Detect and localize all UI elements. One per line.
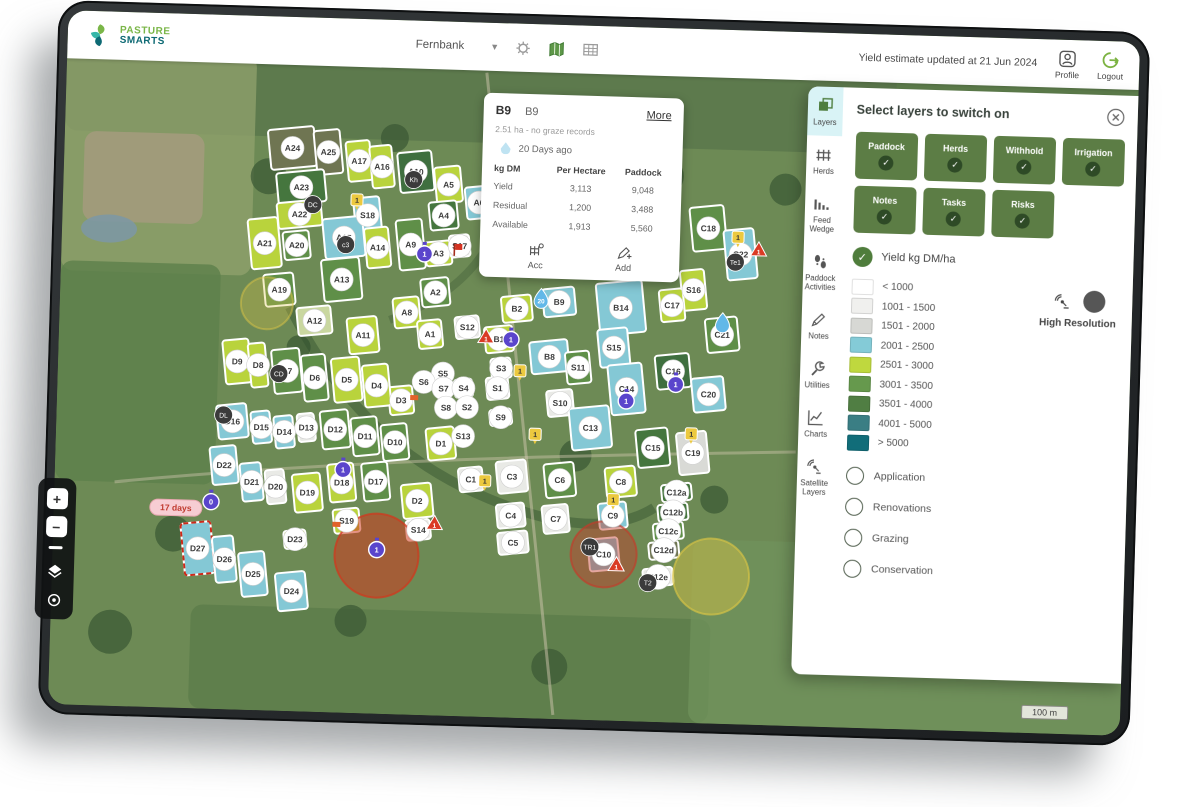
paddock-label-A8[interactable]: A8 xyxy=(395,301,419,325)
acc-action-button[interactable]: Acc xyxy=(527,242,545,270)
svg-text:D10: D10 xyxy=(387,437,403,447)
legend-swatch xyxy=(847,434,869,451)
paddock-label-D20[interactable]: D20 xyxy=(264,475,288,499)
map-scale: 100 m xyxy=(1021,705,1068,720)
svg-text:C5: C5 xyxy=(507,538,518,548)
paddock-label-A17[interactable]: A17 xyxy=(347,149,371,173)
legend-label: 1001 - 1500 xyxy=(882,301,936,314)
svg-text:1: 1 xyxy=(509,335,513,344)
svg-text:D19: D19 xyxy=(299,487,315,497)
yield-layer-label: Yield kg DM/ha xyxy=(881,251,956,265)
svg-text:CD: CD xyxy=(274,371,284,378)
svg-text:DC: DC xyxy=(308,202,318,209)
svg-text:A24: A24 xyxy=(285,143,301,153)
close-icon[interactable] xyxy=(1105,107,1126,128)
gear-icon[interactable] xyxy=(513,38,533,58)
check-icon: ✓ xyxy=(852,247,873,268)
paddock-label-S16[interactable]: S16 xyxy=(682,278,706,302)
svg-text:S1: S1 xyxy=(492,383,503,393)
graze-icon xyxy=(527,242,544,258)
paddock-label-A2[interactable]: A2 xyxy=(423,280,447,304)
svg-text:B2: B2 xyxy=(511,304,522,314)
legend-swatch xyxy=(850,317,872,334)
radio-icon xyxy=(843,559,862,578)
add-note-icon xyxy=(615,245,632,261)
option-renovations[interactable]: Renovations xyxy=(845,497,1114,523)
zoom-in-button[interactable]: + xyxy=(46,488,68,510)
svg-text:D22: D22 xyxy=(216,460,232,470)
paddock-label-C20[interactable]: C20 xyxy=(697,383,721,407)
svg-text:A25: A25 xyxy=(321,147,337,157)
svg-text:A11: A11 xyxy=(355,330,371,340)
paddock-label-D27[interactable]: D27 xyxy=(186,536,210,560)
radio-icon xyxy=(845,497,864,516)
radio-icon xyxy=(846,466,865,485)
layer-toggle-notes[interactable]: Notes✓ xyxy=(853,186,916,235)
paddock-label-S9[interactable]: S9 xyxy=(489,405,513,429)
popup-col-paddock: Paddock xyxy=(616,164,670,182)
paddock-label-D15[interactable]: D15 xyxy=(249,415,273,439)
paddock-label-A24[interactable]: A24 xyxy=(281,136,305,160)
svg-text:S7: S7 xyxy=(438,383,449,393)
tag-badge[interactable]: TR1 xyxy=(581,538,600,557)
high-resolution-control: High Resolution xyxy=(1025,289,1130,331)
zoom-slider[interactable] xyxy=(49,546,63,549)
svg-text:1: 1 xyxy=(689,432,693,439)
svg-text:A20: A20 xyxy=(289,240,305,250)
svg-text:Te1: Te1 xyxy=(730,260,741,267)
alert-zone xyxy=(672,537,750,615)
paddock-label-A25[interactable]: A25 xyxy=(317,140,341,164)
logo-line2: SMARTS xyxy=(119,36,170,47)
layer-toggle-tasks[interactable]: Tasks✓ xyxy=(922,188,985,237)
legend-swatch xyxy=(849,356,871,373)
herds-icon xyxy=(814,144,835,165)
panel-tab-paddock-activities[interactable]: Paddock Activities xyxy=(802,242,838,301)
svg-text:D23: D23 xyxy=(287,534,303,544)
panel-tab-herds[interactable]: Herds xyxy=(806,135,842,185)
paddock-label-C15[interactable]: C15 xyxy=(641,436,665,460)
svg-text:D25: D25 xyxy=(245,569,261,579)
tag-badge[interactable]: DC xyxy=(304,195,323,214)
svg-text:C17: C17 xyxy=(664,300,680,310)
profile-button[interactable]: Profile xyxy=(1055,48,1080,80)
option-grazing[interactable]: Grazing xyxy=(844,528,1113,554)
paddock-label-A5[interactable]: A5 xyxy=(437,173,461,197)
popup-paddock-id[interactable]: B9 xyxy=(496,103,512,117)
panel-tab-label: Charts xyxy=(804,429,827,439)
tag-badge[interactable]: c3 xyxy=(336,235,355,254)
logout-icon xyxy=(1100,49,1121,70)
svg-text:D24: D24 xyxy=(284,586,300,596)
paddock-label-S13[interactable]: S13 xyxy=(451,424,475,448)
svg-text:S10: S10 xyxy=(552,398,568,408)
paddock-label-D13[interactable]: D13 xyxy=(294,416,318,440)
panel-tab-charts[interactable]: Charts xyxy=(798,398,834,448)
paddock-label-S12[interactable]: S12 xyxy=(455,315,479,339)
paddock-label-D6[interactable]: D6 xyxy=(303,366,327,390)
svg-text:1: 1 xyxy=(614,564,618,571)
svg-text:S14: S14 xyxy=(411,525,427,535)
legend-swatch xyxy=(851,278,873,295)
paddock-label-D12[interactable]: D12 xyxy=(323,418,347,442)
paddock-label-A1[interactable]: A1 xyxy=(418,322,442,346)
svg-text:A14: A14 xyxy=(370,242,386,252)
chevron-down-icon: ▼ xyxy=(490,42,499,52)
check-icon: ✓ xyxy=(1016,159,1031,174)
paddock-label-D2[interactable]: D2 xyxy=(405,489,429,513)
svg-text:S18: S18 xyxy=(360,210,376,220)
farm-selector-value: Fernbank xyxy=(415,39,464,52)
tag-badge[interactable]: CD xyxy=(270,364,289,383)
paddock-label-D23[interactable]: D23 xyxy=(283,527,307,551)
legend-label: < 1000 xyxy=(882,282,913,294)
popup-table: kg DM Per Hectare Paddock Yield3,1139,04… xyxy=(492,160,670,238)
yield-layer-toggle[interactable]: ✓ Yield kg DM/ha xyxy=(852,247,1121,275)
feed-wedge-icon xyxy=(812,193,833,214)
legend-label: 3501 - 4000 xyxy=(879,399,933,412)
svg-text:A21: A21 xyxy=(257,238,273,248)
svg-text:1: 1 xyxy=(518,369,522,376)
svg-text:1: 1 xyxy=(611,497,615,504)
satellite-icon xyxy=(804,456,825,477)
svg-text:D3: D3 xyxy=(396,395,407,405)
paddock-label-D3[interactable]: D3 xyxy=(389,388,413,412)
legend-label: 3001 - 3500 xyxy=(879,379,933,392)
svg-text:D12: D12 xyxy=(327,424,343,434)
paddock-label-C8[interactable]: C8 xyxy=(609,470,633,494)
profile-icon xyxy=(1057,48,1078,69)
pasturesmarts-logo-icon xyxy=(85,21,114,50)
paddock-label-B14[interactable]: B14 xyxy=(609,296,633,320)
paddock-label-S2[interactable]: S2 xyxy=(455,395,479,419)
paddock-label-S14[interactable]: S14 xyxy=(406,518,430,542)
svg-text:S13: S13 xyxy=(455,431,471,441)
notes-icon xyxy=(809,309,830,330)
layers-panel: LayersHerdsFeed WedgePaddock ActivitiesN… xyxy=(791,86,1138,684)
svg-text:A3: A3 xyxy=(433,248,444,258)
paddock-popup: B9 B9 More 2.51 ha - no graze records 20… xyxy=(479,93,684,283)
svg-text:D17: D17 xyxy=(368,476,384,486)
svg-text:A9: A9 xyxy=(405,239,416,249)
legend-swatch xyxy=(848,376,870,393)
svg-text:A16: A16 xyxy=(374,161,390,171)
check-icon: ✓ xyxy=(947,157,962,172)
svg-text:c3: c3 xyxy=(342,242,350,249)
svg-text:A1: A1 xyxy=(425,329,436,339)
svg-text:17 days: 17 days xyxy=(160,502,192,513)
satellite-dish-icon xyxy=(1051,291,1072,312)
paddock-label-D4[interactable]: D4 xyxy=(365,374,389,398)
paddock-label-D19[interactable]: D19 xyxy=(295,481,319,505)
panel-tab-label: Herds xyxy=(813,166,834,176)
svg-text:A12: A12 xyxy=(307,315,323,325)
paddock-label-A12[interactable]: A12 xyxy=(303,309,327,333)
option-conservation[interactable]: Conservation xyxy=(843,559,1112,585)
svg-text:D20: D20 xyxy=(268,481,284,491)
check-icon: ✓ xyxy=(1015,213,1030,228)
paddock-label-C18[interactable]: C18 xyxy=(697,216,721,240)
svg-text:D1: D1 xyxy=(435,438,446,448)
tag-badge[interactable]: Kh xyxy=(404,170,423,189)
paddock-label-D14[interactable]: D14 xyxy=(272,420,296,444)
svg-text:1: 1 xyxy=(484,336,488,343)
svg-text:C13: C13 xyxy=(583,423,599,433)
marker-dot xyxy=(332,522,340,527)
legend-swatch xyxy=(851,298,873,315)
svg-text:D13: D13 xyxy=(298,422,314,432)
paddock-label-D26[interactable]: D26 xyxy=(212,547,236,571)
layer-toggle-risks[interactable]: Risks✓ xyxy=(991,190,1054,239)
high-resolution-toggle[interactable] xyxy=(1083,290,1106,313)
paddock-label-A20[interactable]: A20 xyxy=(285,233,309,257)
svg-text:A8: A8 xyxy=(401,307,412,317)
layer-toggle-withhold[interactable]: Withhold✓ xyxy=(993,136,1056,185)
paddock-label-S1[interactable]: S1 xyxy=(486,376,510,400)
paddock-label-A11[interactable]: A11 xyxy=(351,323,375,347)
paddock-label-A16[interactable]: A16 xyxy=(370,155,394,179)
svg-text:D26: D26 xyxy=(216,554,232,564)
panel-tab-notes[interactable]: Notes xyxy=(801,300,837,350)
marker-dot xyxy=(410,395,418,400)
svg-text:S3: S3 xyxy=(496,363,507,373)
paddock-label-B8[interactable]: B8 xyxy=(538,345,562,369)
paddock-label-C3[interactable]: C3 xyxy=(500,465,524,489)
svg-text:A23: A23 xyxy=(294,182,310,192)
days-badge: 17 days xyxy=(150,499,202,517)
svg-text:1: 1 xyxy=(355,198,359,205)
svg-text:D6: D6 xyxy=(309,373,320,383)
paddock-label-C5[interactable]: C5 xyxy=(501,531,525,555)
svg-text:TR1: TR1 xyxy=(583,544,596,551)
svg-text:D9: D9 xyxy=(232,356,243,366)
legend-label: 4001 - 5000 xyxy=(878,418,932,431)
svg-text:D14: D14 xyxy=(276,427,292,437)
paddock-label-A14[interactable]: A14 xyxy=(366,236,390,260)
check-icon: ✓ xyxy=(946,211,961,226)
panel-tab-layers[interactable]: Layers xyxy=(807,86,843,136)
svg-text:A22: A22 xyxy=(292,209,308,219)
paddock-label-D17[interactable]: D17 xyxy=(364,470,388,494)
paddock-label-D8[interactable]: D8 xyxy=(246,353,270,377)
paddock-label-S18[interactable]: S18 xyxy=(356,203,380,227)
popup-paddock-name[interactable]: B9 xyxy=(525,106,539,118)
paddock-label-B2[interactable]: B2 xyxy=(505,297,529,321)
locate-icon[interactable] xyxy=(45,590,64,609)
svg-text:T2: T2 xyxy=(644,580,652,587)
svg-text:C12a: C12a xyxy=(666,487,687,498)
paddock-label-C7[interactable]: C7 xyxy=(544,507,568,531)
layer-toggle-herds[interactable]: Herds✓ xyxy=(924,134,987,183)
svg-text:D4: D4 xyxy=(371,380,382,390)
svg-text:C15: C15 xyxy=(645,443,661,453)
paddock-label-A13[interactable]: A13 xyxy=(330,268,354,292)
svg-text:C1: C1 xyxy=(465,474,476,484)
logout-button[interactable]: Logout xyxy=(1097,49,1124,81)
svg-text:C12c: C12c xyxy=(658,526,679,537)
svg-text:C20: C20 xyxy=(701,389,717,399)
svg-text:1: 1 xyxy=(533,432,537,439)
paddock-label-S19[interactable]: S19 xyxy=(335,509,359,533)
svg-text:0: 0 xyxy=(209,497,213,506)
svg-text:D27: D27 xyxy=(190,543,206,553)
svg-text:D21: D21 xyxy=(244,477,260,487)
layers-icon xyxy=(815,95,836,116)
paddock-label-D22[interactable]: D22 xyxy=(212,453,236,477)
panel-tab-label: Layers xyxy=(813,117,837,127)
paddock-label-A21[interactable]: A21 xyxy=(253,231,277,255)
panel-tab-label: Paddock Activities xyxy=(805,273,836,292)
paddock-label-A19[interactable]: A19 xyxy=(267,278,291,302)
svg-text:A13: A13 xyxy=(334,274,350,284)
svg-text:1: 1 xyxy=(736,235,740,242)
popup-col-metric: kg DM xyxy=(494,160,546,178)
layer-toggle-paddock[interactable]: Paddock✓ xyxy=(855,132,918,181)
water-drop-icon xyxy=(500,142,510,154)
svg-text:1: 1 xyxy=(374,545,378,554)
legend-swatch xyxy=(849,337,871,354)
svg-text:C6: C6 xyxy=(554,475,565,485)
paddock-label-B9[interactable]: B9 xyxy=(547,290,571,314)
svg-text:S15: S15 xyxy=(606,342,622,352)
add-action-button[interactable]: Add xyxy=(614,245,632,273)
svg-text:A4: A4 xyxy=(438,210,449,220)
svg-text:B9: B9 xyxy=(554,297,565,307)
svg-text:S12: S12 xyxy=(460,322,476,332)
logout-label: Logout xyxy=(1097,70,1123,81)
paddock-label-C13[interactable]: C13 xyxy=(579,416,603,440)
paddock-label-C12d[interactable]: C12d xyxy=(651,537,677,563)
zoom-out-button[interactable]: − xyxy=(45,516,67,538)
paddock-label-D10[interactable]: D10 xyxy=(383,430,407,454)
paddock-label-D24[interactable]: D24 xyxy=(280,579,304,603)
last-grazed-text: 20 Days ago xyxy=(518,143,572,156)
paddock-label-D25[interactable]: D25 xyxy=(241,562,265,586)
paddock-label-C17[interactable]: C17 xyxy=(660,293,684,317)
svg-text:A5: A5 xyxy=(443,179,454,189)
grid-view-icon[interactable] xyxy=(580,40,601,60)
svg-text:D2: D2 xyxy=(412,496,423,506)
paddock-label-C6[interactable]: C6 xyxy=(548,468,572,492)
paddock-label-S11[interactable]: S11 xyxy=(566,356,590,380)
paddock-label-S15[interactable]: S15 xyxy=(602,336,626,360)
svg-text:A2: A2 xyxy=(430,287,441,297)
paddock-activities-icon xyxy=(810,251,831,272)
svg-text:Kh: Kh xyxy=(409,177,418,184)
svg-text:D18: D18 xyxy=(334,477,350,487)
svg-text:C4: C4 xyxy=(505,510,516,520)
app-screen: A24A25A17A16A10A5A6A23A22S18A4A15A14A9A3… xyxy=(48,10,1140,735)
svg-text:1: 1 xyxy=(422,250,426,259)
svg-text:C7: C7 xyxy=(550,514,561,524)
svg-text:A19: A19 xyxy=(272,284,288,294)
paddock-label-D1[interactable]: D1 xyxy=(429,432,453,456)
utilities-icon xyxy=(807,358,828,379)
paddock-label-D9[interactable]: D9 xyxy=(225,350,249,374)
paddock-label-D5[interactable]: D5 xyxy=(335,368,359,392)
panel-tab-satellite-layers[interactable]: Satellite Layers xyxy=(796,447,832,506)
popup-table-row: Available1,9135,560 xyxy=(492,214,668,238)
svg-text:C16: C16 xyxy=(665,366,681,376)
panel-tab-label: Satellite Layers xyxy=(798,478,829,497)
paddock-label-A23[interactable]: A23 xyxy=(290,175,314,199)
panel-title: Select layers to switch on xyxy=(856,103,1009,122)
layers-switch-icon[interactable] xyxy=(46,561,65,580)
panel-tab-utilities[interactable]: Utilities xyxy=(799,349,835,399)
svg-text:1: 1 xyxy=(624,397,628,406)
svg-text:1: 1 xyxy=(483,479,487,486)
paddock-label-C4[interactable]: C4 xyxy=(499,504,523,528)
yield-status-text: Yield estimate updated at 21 Jun 2024 xyxy=(858,52,1037,69)
check-icon: ✓ xyxy=(877,209,892,224)
svg-text:1: 1 xyxy=(432,523,436,530)
svg-text:D11: D11 xyxy=(357,431,373,441)
svg-text:1: 1 xyxy=(757,249,761,256)
charts-icon xyxy=(806,407,827,428)
svg-text:D5: D5 xyxy=(341,375,352,385)
paddock-label-S10[interactable]: S10 xyxy=(548,391,572,415)
tag-badge[interactable]: Te1 xyxy=(726,253,745,272)
profile-label: Profile xyxy=(1055,69,1079,80)
app-logo: PASTURE SMARTS xyxy=(85,21,170,51)
panel-tab-label: Notes xyxy=(808,331,829,341)
option-application[interactable]: Application xyxy=(846,466,1115,492)
paddock-label-S3[interactable]: S3 xyxy=(489,356,513,380)
svg-text:S4: S4 xyxy=(458,383,469,393)
svg-text:C19: C19 xyxy=(685,448,701,458)
svg-text:S6: S6 xyxy=(418,377,429,387)
tag-badge[interactable]: DL xyxy=(214,406,233,425)
panel-tab-feed-wedge[interactable]: Feed Wedge xyxy=(804,184,840,243)
map-controls: + − xyxy=(34,478,76,620)
svg-text:1: 1 xyxy=(341,465,345,474)
legend-label: 1501 - 2000 xyxy=(881,321,935,334)
page-background: A24A25A17A16A10A5A6A23A22S18A4A15A14A9A3… xyxy=(0,0,1200,807)
paddock-label-C19[interactable]: C19 xyxy=(681,441,705,465)
tablet-frame: A24A25A17A16A10A5A6A23A22S18A4A15A14A9A3… xyxy=(38,0,1151,746)
tag-badge[interactable]: T2 xyxy=(639,573,658,592)
layer-toggle-irrigation[interactable]: Irrigation✓ xyxy=(1062,138,1125,187)
legend-swatch xyxy=(847,415,869,432)
svg-text:S16: S16 xyxy=(686,285,702,295)
popup-subtitle: 2.51 ha - no graze records xyxy=(495,124,671,139)
legend-label: 2501 - 3000 xyxy=(880,360,934,373)
svg-text:B8: B8 xyxy=(544,352,555,362)
panel-tab-label: Feed Wedge xyxy=(806,215,837,234)
map-view-icon[interactable] xyxy=(546,39,567,59)
svg-text:C12d: C12d xyxy=(653,545,674,556)
svg-text:S9: S9 xyxy=(495,412,506,422)
popup-more-link[interactable]: More xyxy=(646,109,671,122)
svg-text:C3: C3 xyxy=(506,471,517,481)
paddock-label-S8[interactable]: S8 xyxy=(434,396,458,420)
svg-text:20: 20 xyxy=(537,298,545,305)
paddock-label-D11[interactable]: D11 xyxy=(353,424,377,448)
paddock-label-D21[interactable]: D21 xyxy=(240,470,264,494)
svg-text:1: 1 xyxy=(673,380,677,389)
farm-selector-dropdown[interactable]: Fernbank ▼ xyxy=(415,39,499,53)
svg-text:S19: S19 xyxy=(339,516,355,526)
svg-text:C9: C9 xyxy=(607,510,618,520)
svg-text:C12b: C12b xyxy=(663,507,684,518)
check-icon: ✓ xyxy=(878,155,893,170)
panel-main: Select layers to switch on Paddock✓Herds… xyxy=(826,87,1140,684)
svg-text:A17: A17 xyxy=(351,156,367,166)
legend-label: > 5000 xyxy=(878,438,909,450)
check-icon: ✓ xyxy=(1085,161,1100,176)
svg-text:DL: DL xyxy=(219,413,228,420)
paddock-label-A4[interactable]: A4 xyxy=(432,204,456,228)
